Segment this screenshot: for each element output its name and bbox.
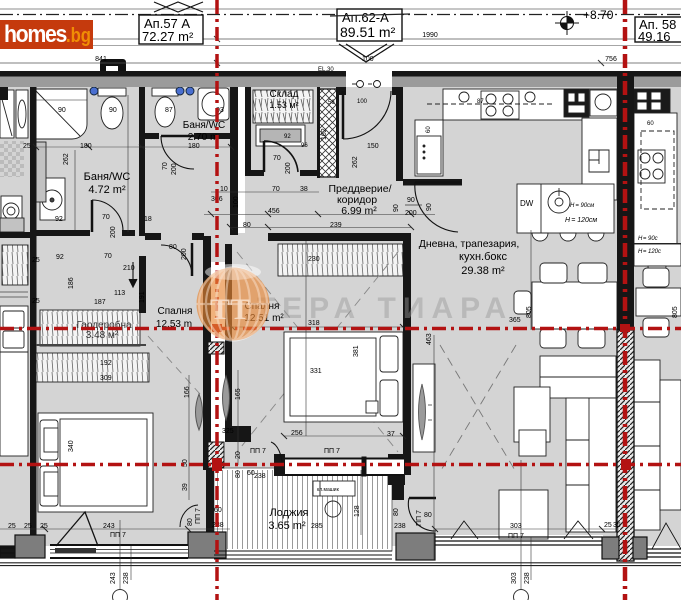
svg-text:80: 80 bbox=[424, 512, 432, 519]
svg-text:180: 180 bbox=[188, 143, 200, 150]
svg-text:70: 70 bbox=[273, 155, 281, 162]
svg-text:243: 243 bbox=[103, 523, 115, 530]
svg-text:1990: 1990 bbox=[422, 32, 438, 39]
svg-text:92: 92 bbox=[56, 254, 64, 261]
svg-text:H = 90с: H = 90с bbox=[638, 236, 658, 242]
svg-text:805: 805 bbox=[526, 306, 533, 318]
svg-text:80: 80 bbox=[187, 518, 194, 526]
svg-text:56: 56 bbox=[328, 100, 335, 106]
svg-text:243: 243 bbox=[110, 572, 117, 584]
svg-text:DW: DW bbox=[520, 199, 534, 208]
svg-text:463: 463 bbox=[426, 333, 433, 345]
svg-text:303: 303 bbox=[510, 523, 522, 530]
svg-text:25: 25 bbox=[23, 143, 31, 150]
svg-text:100: 100 bbox=[357, 99, 368, 105]
svg-text:331: 331 bbox=[310, 368, 322, 375]
svg-text:H = 120с: H = 120с bbox=[638, 249, 661, 255]
svg-text:ПП 7: ПП 7 bbox=[250, 448, 266, 455]
svg-text:homes: homes bbox=[4, 21, 67, 48]
svg-text:230: 230 bbox=[308, 256, 320, 263]
svg-text:262: 262 bbox=[63, 153, 70, 165]
svg-text:200: 200 bbox=[285, 162, 292, 174]
svg-text:6.99 m²: 6.99 m² bbox=[341, 205, 377, 217]
svg-text:25: 25 bbox=[604, 522, 612, 529]
svg-text:80: 80 bbox=[169, 244, 177, 251]
svg-text:25: 25 bbox=[8, 523, 16, 530]
svg-text:2.70 m: 2.70 m bbox=[188, 132, 219, 143]
svg-text:238: 238 bbox=[524, 572, 531, 584]
svg-text:60: 60 bbox=[426, 126, 432, 133]
svg-text:+8.70: +8.70 bbox=[583, 8, 614, 22]
svg-text:25: 25 bbox=[32, 298, 40, 305]
svg-text:25: 25 bbox=[24, 523, 32, 530]
svg-text:381: 381 bbox=[353, 345, 360, 357]
svg-text:38: 38 bbox=[300, 186, 308, 193]
svg-text:186: 186 bbox=[68, 277, 75, 289]
svg-text:Баня/WC: Баня/WC bbox=[84, 171, 131, 183]
svg-text:150: 150 bbox=[367, 143, 379, 150]
svg-text:285: 285 bbox=[311, 523, 323, 530]
svg-text:29.38 m²: 29.38 m² bbox=[461, 265, 505, 277]
svg-text:Лоджия: Лоджия bbox=[270, 507, 309, 519]
svg-text:309: 309 bbox=[100, 375, 112, 382]
svg-text:166: 166 bbox=[184, 386, 191, 398]
svg-text:456: 456 bbox=[268, 208, 280, 215]
svg-text:90: 90 bbox=[407, 197, 415, 204]
svg-text:841: 841 bbox=[95, 56, 107, 63]
svg-text:ПП 7: ПП 7 bbox=[508, 533, 524, 540]
svg-text:EL.30: EL.30 bbox=[318, 67, 334, 73]
svg-text:180: 180 bbox=[80, 143, 92, 150]
svg-text:60: 60 bbox=[647, 121, 654, 127]
svg-text:90: 90 bbox=[426, 203, 433, 211]
svg-text:96: 96 bbox=[301, 143, 308, 149]
svg-text:37: 37 bbox=[387, 431, 395, 438]
svg-text:Дневна, трапезария,: Дневна, трапезария, bbox=[419, 238, 520, 250]
svg-text:100: 100 bbox=[362, 56, 374, 63]
svg-text:200: 200 bbox=[405, 210, 417, 217]
svg-text:H = 90см: H = 90см bbox=[570, 203, 594, 209]
svg-text:113: 113 bbox=[114, 290, 125, 297]
svg-text:239: 239 bbox=[330, 222, 342, 229]
svg-text:3.48 м²: 3.48 м² bbox=[86, 330, 119, 341]
svg-text:ПП 7: ПП 7 bbox=[416, 510, 423, 526]
svg-text:25: 25 bbox=[32, 257, 40, 264]
svg-text:325: 325 bbox=[222, 428, 234, 435]
svg-text:805: 805 bbox=[672, 306, 679, 318]
svg-text:238: 238 bbox=[123, 572, 130, 584]
svg-text:кл.машик: кл.машик bbox=[317, 487, 340, 493]
svg-text:39: 39 bbox=[182, 483, 189, 491]
svg-text:70: 70 bbox=[272, 186, 280, 193]
svg-text:90: 90 bbox=[393, 204, 400, 212]
svg-text:3.65 m²: 3.65 m² bbox=[268, 520, 306, 532]
svg-text:4.72 m²: 4.72 m² bbox=[88, 184, 126, 196]
svg-text:262: 262 bbox=[352, 156, 359, 168]
svg-text:187: 187 bbox=[94, 299, 106, 306]
svg-text:238: 238 bbox=[254, 473, 266, 480]
svg-text:89.51 m²: 89.51 m² bbox=[340, 24, 396, 40]
svg-text:70: 70 bbox=[102, 214, 110, 221]
svg-text:кухн.бокс: кухн.бокс bbox=[459, 251, 507, 263]
svg-text:80: 80 bbox=[393, 508, 400, 516]
svg-text:Спалня: Спалня bbox=[158, 306, 193, 317]
svg-text:.bg: .bg bbox=[66, 25, 91, 47]
svg-text:165: 165 bbox=[235, 388, 242, 400]
svg-text:162: 162 bbox=[321, 128, 328, 140]
svg-text:ПП 7: ПП 7 bbox=[110, 532, 126, 539]
svg-text:340: 340 bbox=[68, 440, 75, 452]
svg-text:ПП 7: ПП 7 bbox=[324, 448, 340, 455]
svg-text:49.16: 49.16 bbox=[638, 29, 671, 44]
svg-text:20: 20 bbox=[235, 451, 242, 459]
svg-text:200: 200 bbox=[171, 163, 178, 175]
svg-text:72.27 m²: 72.27 m² bbox=[142, 29, 194, 44]
svg-text:256: 256 bbox=[291, 430, 303, 437]
svg-text:70: 70 bbox=[162, 162, 169, 170]
svg-text:92: 92 bbox=[284, 134, 291, 140]
svg-text:ТЕРА ТИАРА: ТЕРА ТИАРА bbox=[257, 292, 513, 325]
svg-text:70: 70 bbox=[104, 253, 112, 260]
svg-text:238: 238 bbox=[394, 523, 406, 530]
svg-text:Склад: Склад bbox=[270, 89, 299, 100]
svg-text:H = 120см: H = 120см bbox=[565, 217, 597, 224]
svg-text:ПП 7: ПП 7 bbox=[195, 508, 202, 524]
svg-text:87: 87 bbox=[165, 107, 173, 114]
svg-text:303: 303 bbox=[511, 572, 518, 584]
svg-text:1.53 м²: 1.53 м² bbox=[269, 100, 298, 110]
svg-text:191: 191 bbox=[139, 291, 146, 303]
svg-text:90: 90 bbox=[109, 107, 117, 114]
svg-text:100: 100 bbox=[233, 196, 240, 208]
svg-text:87: 87 bbox=[477, 99, 484, 105]
svg-text:60: 60 bbox=[214, 507, 222, 514]
svg-text:200: 200 bbox=[181, 248, 188, 260]
svg-text:Ап.62-А: Ап.62-А bbox=[342, 10, 389, 25]
svg-text:200: 200 bbox=[110, 226, 117, 238]
svg-text:10: 10 bbox=[220, 186, 228, 193]
svg-text:35: 35 bbox=[613, 522, 621, 529]
svg-text:192: 192 bbox=[100, 360, 112, 367]
svg-text:18: 18 bbox=[144, 216, 152, 223]
svg-text:210: 210 bbox=[123, 265, 135, 272]
svg-text:756: 756 bbox=[605, 56, 617, 63]
svg-text:80: 80 bbox=[243, 222, 251, 229]
svg-text:90: 90 bbox=[58, 107, 66, 114]
svg-text:Баня/WC: Баня/WC bbox=[183, 120, 226, 131]
svg-text:80: 80 bbox=[235, 470, 242, 478]
svg-text:92: 92 bbox=[55, 216, 63, 223]
svg-text:25: 25 bbox=[40, 523, 48, 530]
svg-text:128: 128 bbox=[354, 505, 361, 517]
